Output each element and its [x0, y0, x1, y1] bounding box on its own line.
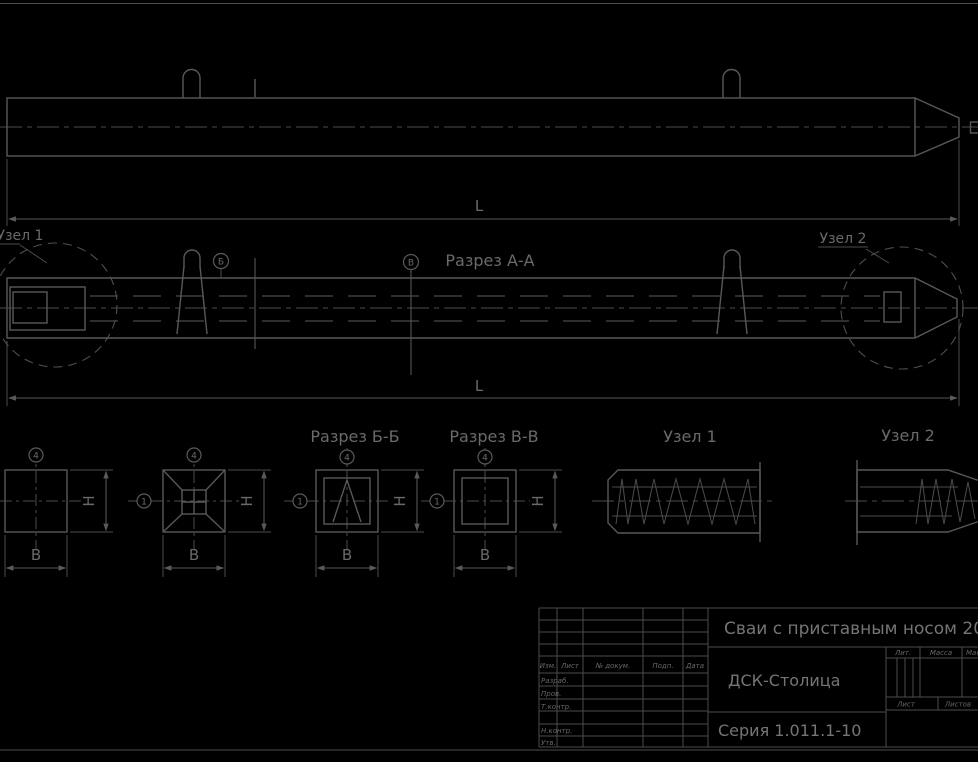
col-dokum: № докум.: [595, 662, 631, 670]
section-vv-view: Разрез В-В 4 1 H B: [421, 427, 562, 577]
rebar-balloon-label: 4: [33, 452, 39, 462]
section-bb-view: Разрез Б-Б 4 1 H B: [284, 427, 424, 577]
section-aa-title: Разрез А-А: [445, 251, 534, 270]
drawing-sheet: L Разрез А-А Узел 1 Узел 2: [0, 0, 978, 762]
col-data: Дата: [685, 662, 704, 670]
col-izm: Изм.: [540, 662, 556, 670]
callout-leader: [20, 245, 47, 263]
title-block: Изм. Лист № докум. Подп. Дата Разраб. Пр…: [539, 608, 978, 747]
lifting-loop: [723, 70, 740, 99]
end-view-section: 4 H B: [0, 448, 113, 577]
rebar-balloon-label: 1: [141, 498, 147, 508]
rebar-balloon-label: 4: [482, 454, 488, 464]
row-tkontr: Т.контр.: [541, 703, 571, 711]
col-podp: Подп.: [652, 662, 673, 670]
row-prov: Пров.: [541, 690, 561, 698]
section-vv-title: Разрез В-В: [449, 427, 538, 446]
dimension-label-H: H: [238, 495, 256, 506]
node1-title: Узел 1: [663, 427, 717, 446]
plan-view: L: [0, 70, 978, 227]
node2-callout-label: Узел 2: [820, 231, 867, 247]
header-masshtab: Масштаб: [966, 649, 978, 657]
callout-leader: [866, 249, 889, 263]
row-razrab: Разраб.: [541, 677, 569, 685]
cut-balloon-v-label: В: [408, 259, 414, 269]
dimension-label-B: B: [189, 546, 199, 564]
document-title: Сваи с приставным носом 200x2: [724, 619, 978, 639]
series-number: Серия 1.011.1-10: [718, 721, 861, 740]
node2-title: Узел 2: [881, 426, 935, 445]
dimension-label-L: L: [475, 377, 484, 395]
rebar-balloon-label: 4: [344, 454, 350, 464]
col-list: Лист: [560, 662, 580, 670]
lifting-loop: [183, 70, 200, 99]
header-lit: Лит.: [894, 649, 911, 657]
company-name: ДСК-Столица: [728, 671, 840, 690]
node1-detail-circle: [0, 243, 117, 367]
dimension-label-H: H: [529, 495, 547, 506]
dimension-label-B: B: [342, 546, 352, 564]
header-massa: Масса: [930, 649, 952, 657]
node1-callout-label: Узел 1: [0, 228, 43, 244]
node1-detail: Узел 1: [592, 427, 772, 542]
row-utv: Утв.: [541, 739, 556, 747]
dimension-label-H: H: [80, 495, 98, 506]
header-listov: Листов: [944, 701, 971, 709]
dimension-label-B: B: [31, 546, 41, 564]
rebar-balloon-label: 1: [434, 498, 440, 508]
cut-balloon-b-label: Б: [218, 258, 224, 268]
rebar-balloon-label: 1: [297, 498, 303, 508]
nose-embedded-plate: [884, 292, 901, 322]
header-list: Лист: [896, 701, 916, 709]
dimension-label-L: L: [475, 197, 484, 215]
node2-detail: Узел 2: [845, 426, 978, 545]
section-bb-title: Разрез Б-Б: [310, 427, 399, 446]
row-nkontr: Н.контр.: [541, 727, 572, 735]
rebar-balloon-label: 4: [191, 452, 197, 462]
dimension-label-B: B: [480, 546, 490, 564]
dimension-label-H: H: [391, 495, 409, 506]
section-aa-view: Разрез А-А Узел 1 Узел 2: [0, 228, 978, 406]
head-view-section: 4 1 H B: [128, 448, 271, 577]
